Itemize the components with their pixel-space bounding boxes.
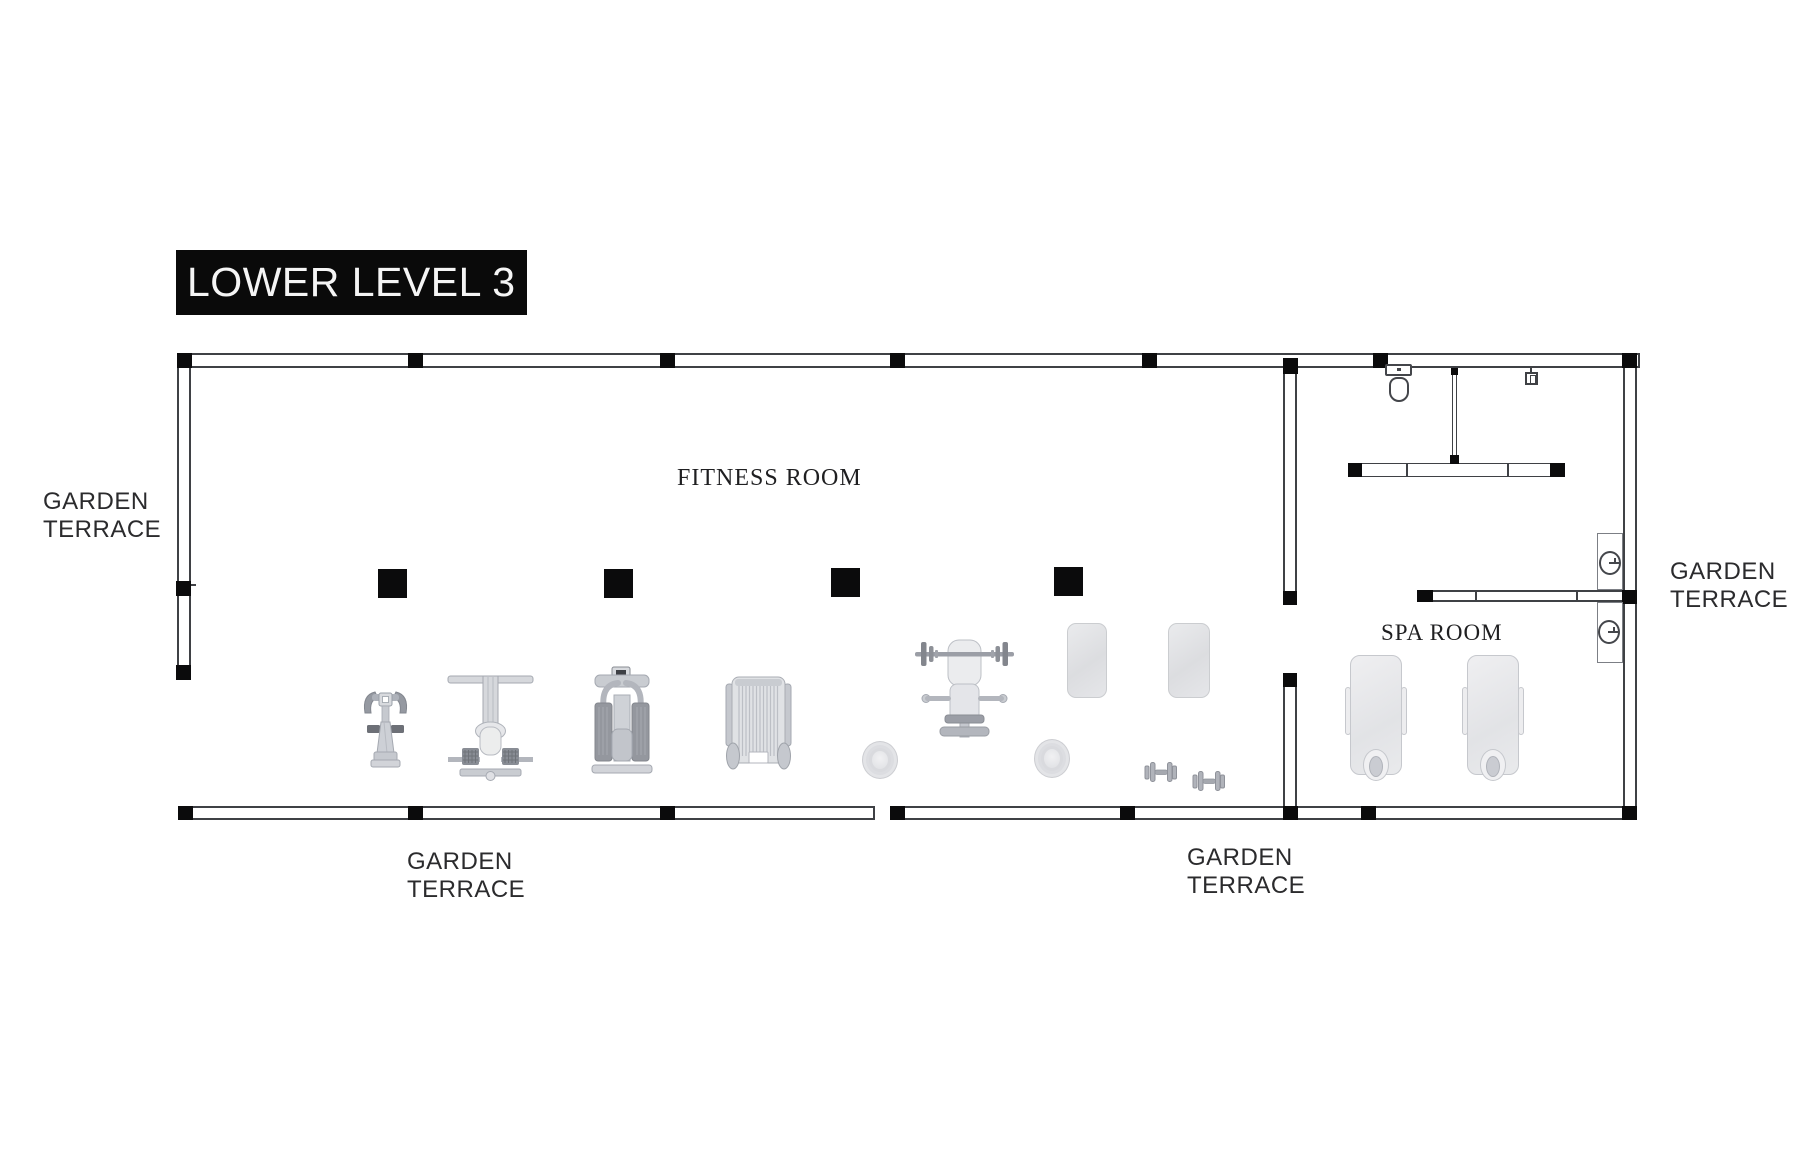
column — [408, 806, 423, 820]
wall-knob-icon — [1599, 551, 1621, 575]
wall-divider-lower — [1283, 673, 1297, 820]
wall-bottom-left-segment — [178, 806, 875, 820]
table-headrest-hole — [1369, 756, 1383, 777]
toilet-button — [1397, 368, 1401, 371]
column — [1283, 358, 1298, 374]
plan-title: LOWER LEVEL 3 — [176, 250, 527, 315]
exercise-mat-icon — [1067, 623, 1107, 698]
exercise-ball-icon — [862, 741, 898, 779]
wall-spa-north — [1417, 590, 1637, 602]
table-headrest-hole — [1486, 756, 1500, 777]
partition-cap — [1451, 368, 1458, 375]
column — [1361, 806, 1376, 820]
garden-terrace-label-right: GARDEN TERRACE — [1670, 558, 1788, 614]
column — [176, 665, 191, 680]
column — [890, 353, 905, 368]
column — [1622, 590, 1637, 604]
partition-cap — [1450, 455, 1459, 464]
wall-spa-north-joint — [1576, 591, 1578, 601]
bench-counter-joint — [1406, 464, 1408, 476]
counter-end-cap — [1550, 463, 1565, 477]
bench-counter-joint — [1507, 464, 1509, 476]
floor-plan-canvas: LOWER LEVEL 3 — [0, 0, 1800, 1152]
column — [1283, 591, 1297, 605]
column — [1142, 353, 1157, 368]
wall-top — [177, 353, 1640, 368]
garden-terrace-label-bottom-right: GARDEN TERRACE — [1187, 844, 1305, 900]
wall-knob-icon — [1598, 620, 1620, 644]
spa-room-label: SPA ROOM — [1381, 620, 1503, 646]
wall-spa-north-joint — [1475, 591, 1477, 601]
column — [1283, 806, 1298, 820]
column — [1622, 353, 1637, 368]
interior-pillar — [378, 569, 407, 598]
interior-pillar — [604, 569, 633, 598]
dumbbell-icon — [1192, 770, 1226, 792]
dumbbell-icon — [1144, 761, 1178, 783]
column — [178, 806, 193, 820]
wc-partition — [1452, 368, 1457, 463]
wall-tick — [191, 584, 196, 586]
wall-end-cap — [1417, 590, 1433, 602]
exercise-mat-icon — [1168, 623, 1210, 698]
wall-left — [177, 356, 191, 680]
column — [176, 581, 191, 596]
column — [408, 353, 423, 368]
chest-press-machine-icon — [591, 667, 653, 781]
barbell-bench-icon — [914, 639, 1015, 743]
column — [660, 353, 675, 368]
weight-bench-machine-icon — [447, 671, 534, 783]
fitness-room-label: FITNESS ROOM — [677, 465, 862, 492]
wall-bottom-right-segment — [890, 806, 1637, 820]
garden-terrace-label-bottom-left: GARDEN TERRACE — [407, 848, 525, 904]
garden-terrace-label-left: GARDEN TERRACE — [43, 488, 161, 544]
exercise-ball-icon — [1034, 739, 1070, 778]
bench-counter — [1348, 463, 1565, 477]
column — [890, 806, 905, 820]
column — [660, 806, 675, 820]
wall-divider-upper — [1283, 365, 1297, 605]
column — [1283, 673, 1297, 687]
exercise-bike-icon — [362, 689, 409, 769]
stair-climber-icon — [726, 676, 791, 774]
interior-pillar — [1054, 567, 1083, 596]
column — [1622, 806, 1637, 820]
wall-fixture-icon — [1525, 372, 1538, 385]
interior-pillar — [831, 568, 860, 597]
toilet-bowl — [1389, 377, 1409, 402]
wall-right — [1623, 353, 1637, 820]
column — [1120, 806, 1135, 820]
column — [177, 353, 192, 368]
counter-end-cap — [1348, 463, 1362, 477]
